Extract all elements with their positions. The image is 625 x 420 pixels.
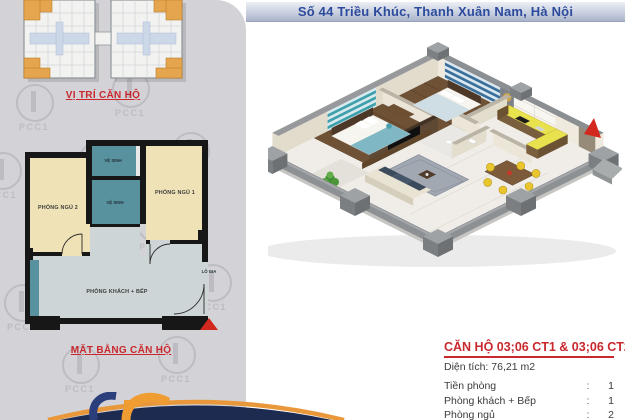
header-bar: Số 44 Triều Khúc, Thanh Xuân Nam, Hà Nội (246, 2, 625, 22)
room-label-living-kitchen: PHÒNG KHÁCH + BẾP (86, 287, 148, 295)
site-plan-drawing (18, 0, 188, 88)
apartment-title: CĂN HỘ 03;06 CT1 & 03;06 CT2 (444, 340, 614, 358)
floor-plan-drawing: PHÒNG NGỦ 2 PHÒNG NGỦ 1 VỆ SINH VỆ SINH … (12, 132, 230, 337)
floor-plan-label: MẶT BẰNG CĂN HỘ (12, 345, 230, 356)
room-label-bedroom1: PHÒNG NGỦ 1 (155, 188, 195, 196)
room-label-bedroom2: PHÒNG NGỦ 2 (38, 203, 78, 211)
apartment-3d-render (268, 38, 622, 330)
spec-row: Tiền phòng : 1 (444, 379, 614, 394)
brochure-page: PCC1 PCC1 PCC1 PCC1 PCC1 PCC1 PCC1 PCC1 … (0, 0, 625, 420)
apartment-info: CĂN HỘ 03;06 CT1 & 03;06 CT2 Diện tích: … (444, 340, 614, 420)
site-plan-label: VỊ TRÍ CĂN HỘ (18, 90, 188, 101)
room-label-bathroom2: VỆ SINH (106, 200, 123, 205)
spec-row: Phòng ngủ : 2 (444, 408, 614, 420)
apartment-spec-list: Tiền phòng : 1 Phòng khách + Bếp : 1 Phò… (444, 379, 614, 420)
spec-row: Phòng khách + Bếp : 1 (444, 394, 614, 409)
rooms (27, 144, 208, 324)
room-label-loggia: LÔ GIA (202, 269, 217, 274)
room-label-bathroom1: VỆ SINH (104, 158, 121, 163)
project-address: Số 44 Triều Khúc, Thanh Xuân Nam, Hà Nội (298, 4, 573, 19)
developer-logo (64, 392, 214, 420)
apartment-area: Diện tích: 76,21 m2 (444, 361, 614, 373)
